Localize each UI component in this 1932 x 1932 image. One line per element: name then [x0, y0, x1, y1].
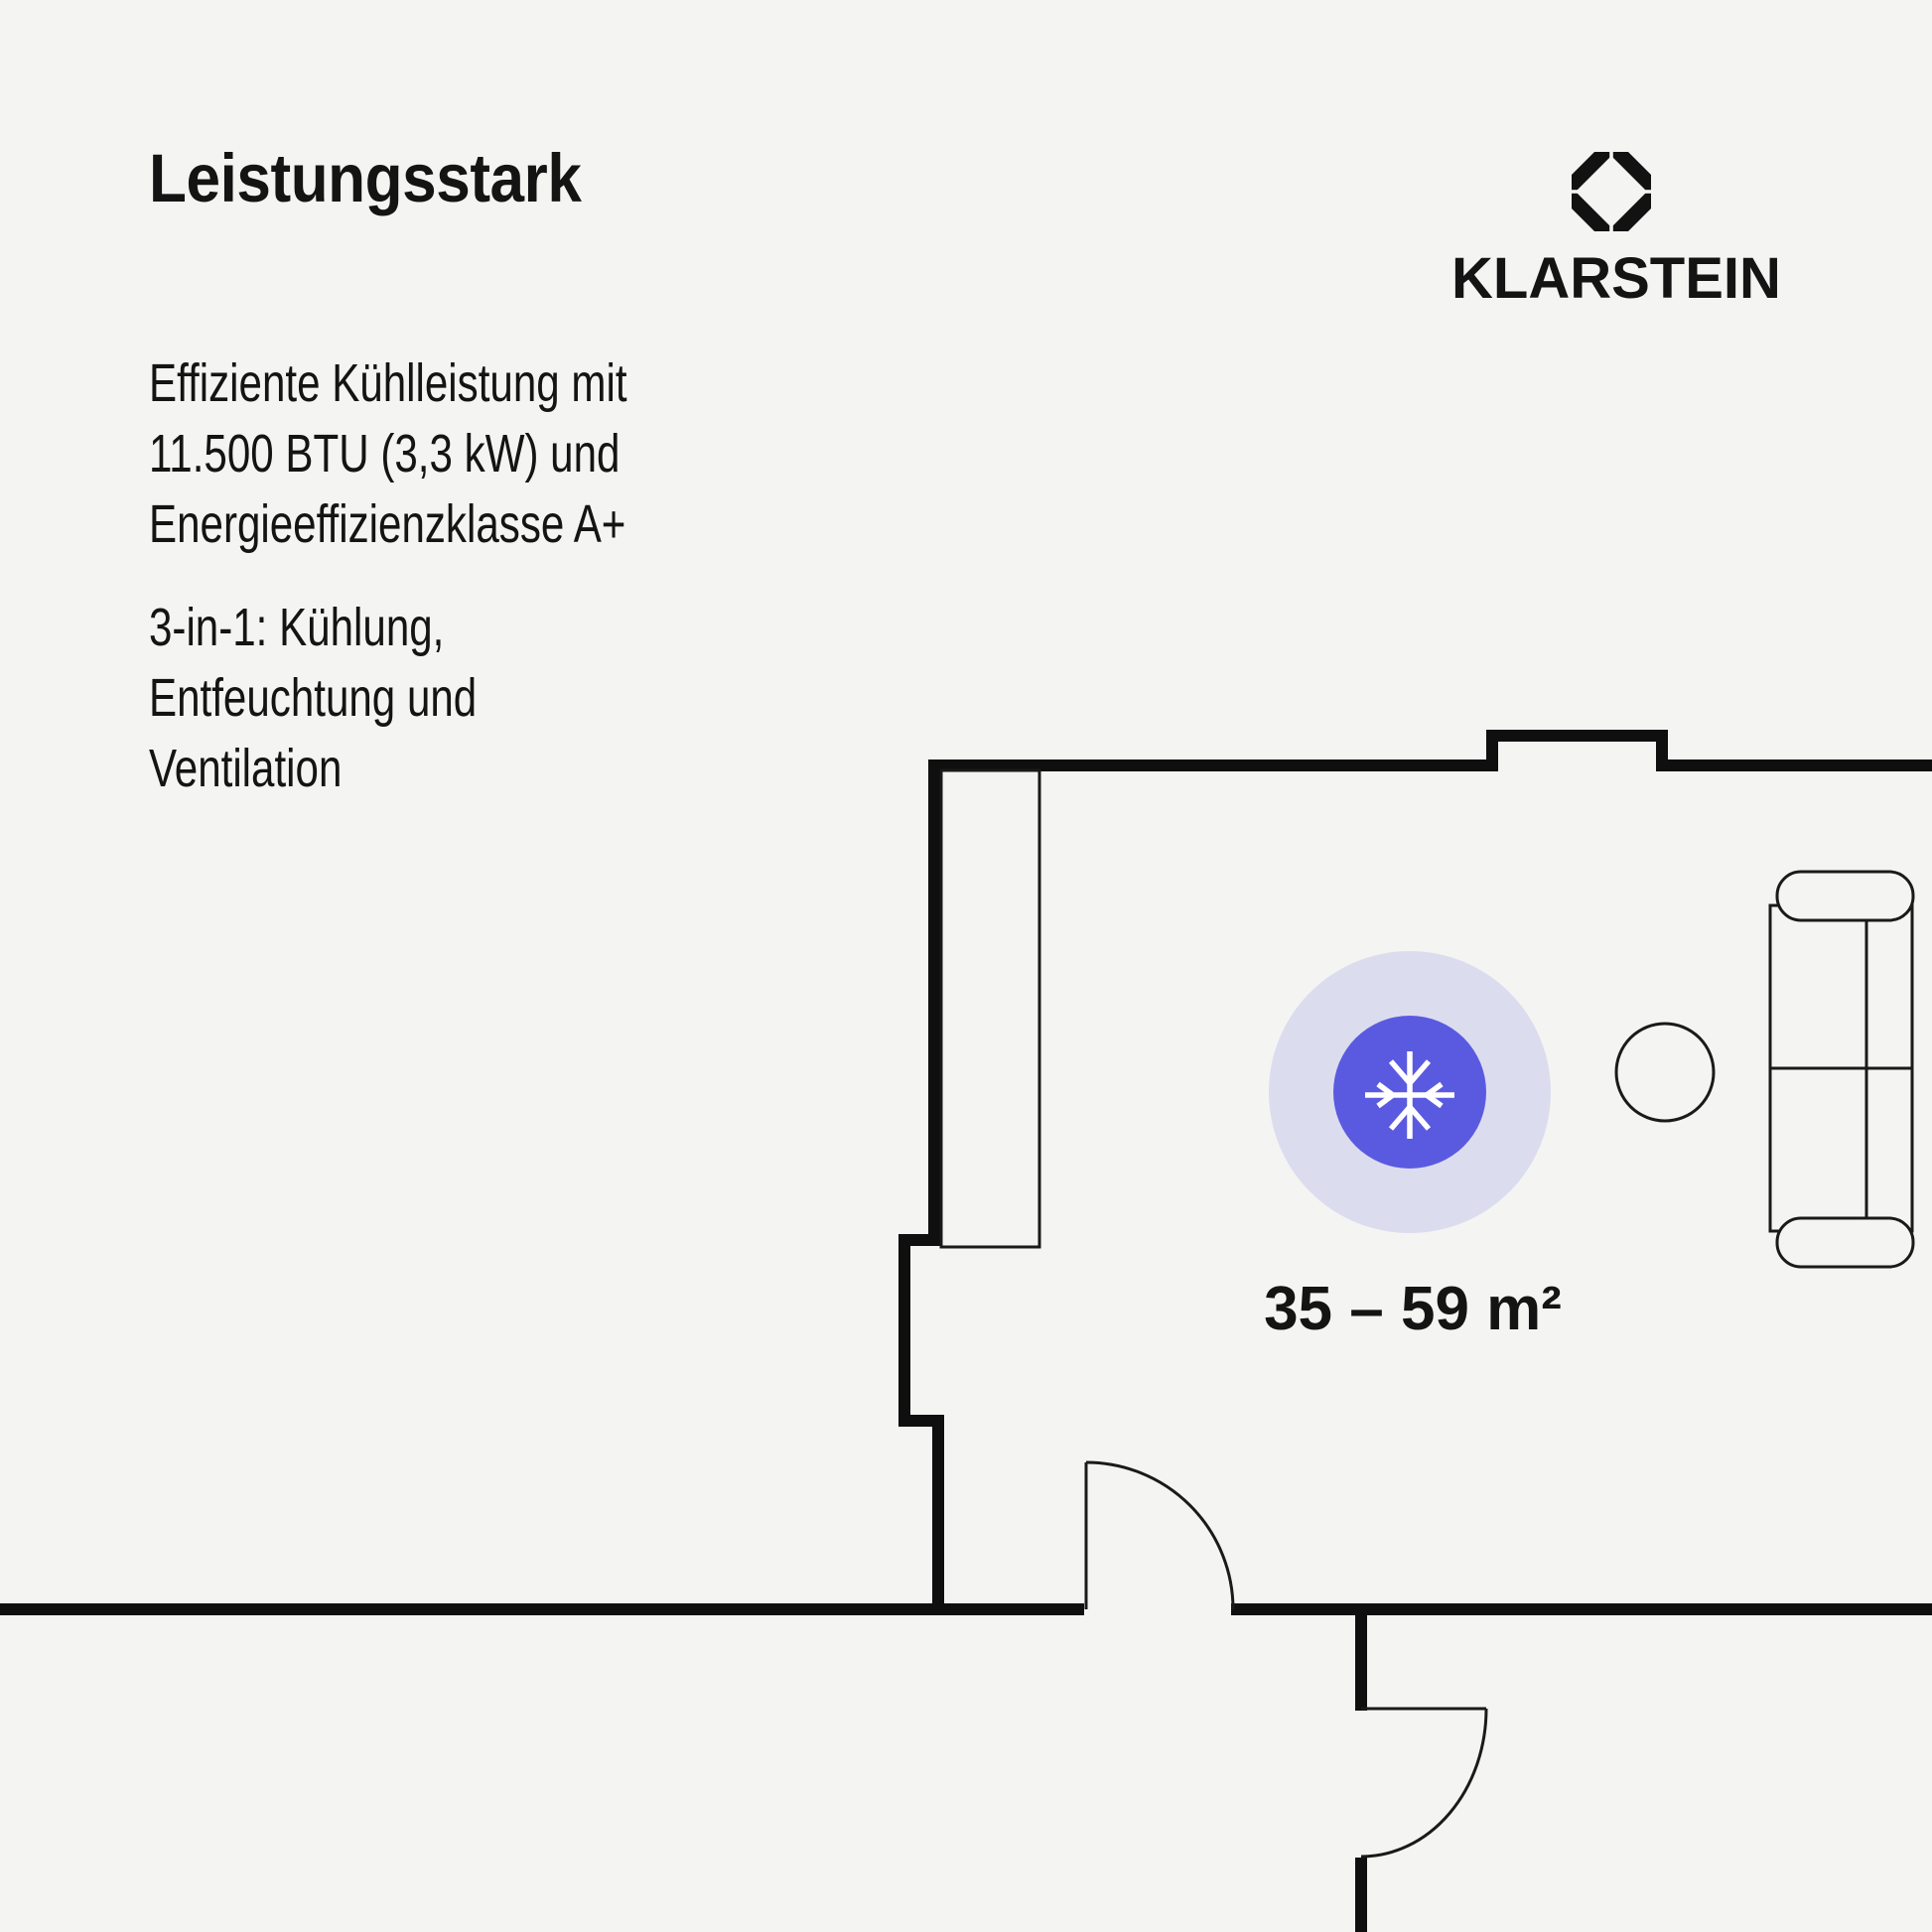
- wardrobe: [941, 770, 1039, 1247]
- top-wall: [928, 736, 1932, 765]
- left-wall: [904, 759, 938, 1615]
- floor-plan: [0, 0, 1932, 1932]
- infographic-page: Leistungsstark Effiziente Kühlleistung m…: [0, 0, 1932, 1932]
- side-table: [1616, 1024, 1714, 1121]
- hallway-door-swing-arc: [1361, 1709, 1486, 1857]
- sofa-armrest-top: [1777, 872, 1913, 920]
- doors: [1086, 1462, 1486, 1857]
- room-door-swing-arc: [1086, 1462, 1233, 1609]
- room-door: [1086, 1462, 1233, 1609]
- area-range-label: 35 – 59 m²: [1264, 1274, 1562, 1344]
- sofa: [1770, 872, 1913, 1267]
- cooling-badge: [1269, 951, 1551, 1233]
- sofa-armrest-bottom: [1777, 1218, 1913, 1267]
- hallway-door: [1361, 1709, 1486, 1857]
- walls: [0, 736, 1932, 1932]
